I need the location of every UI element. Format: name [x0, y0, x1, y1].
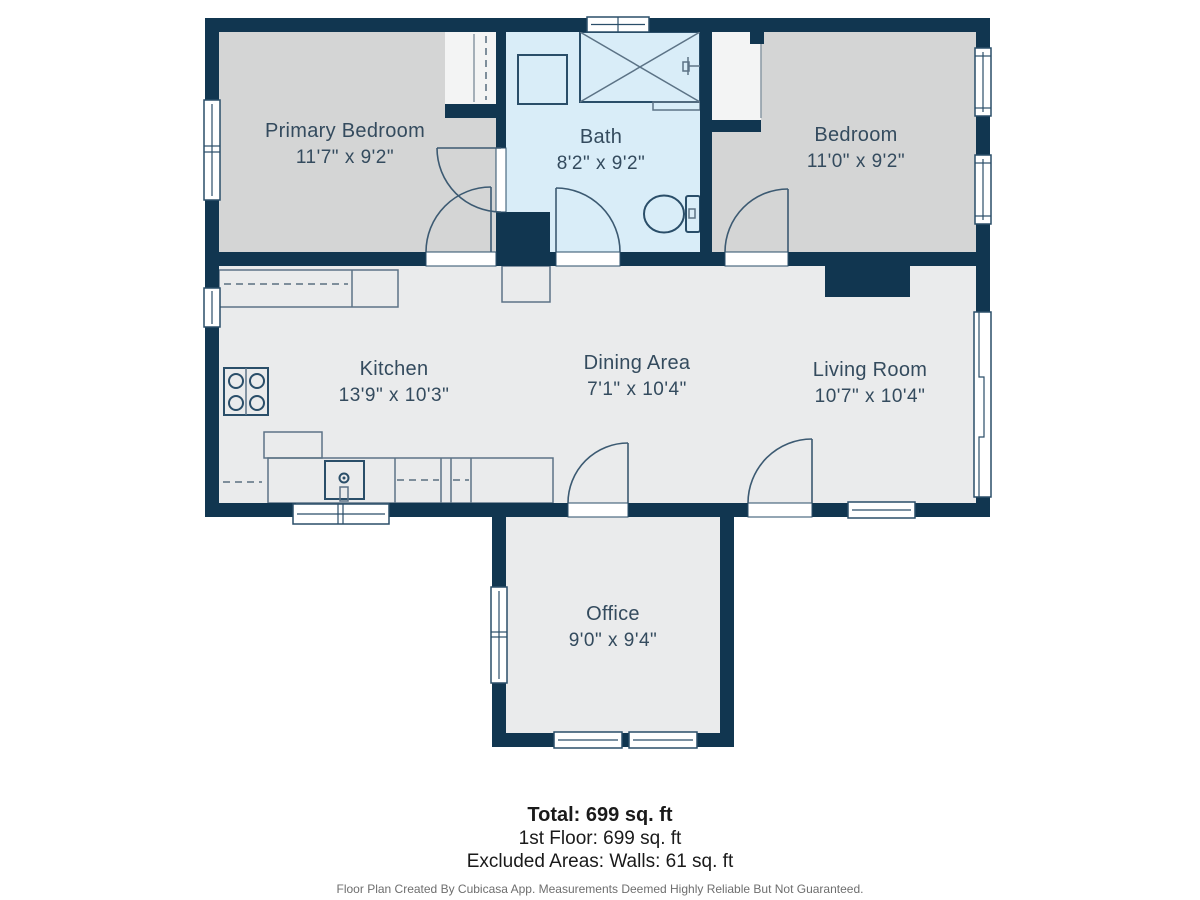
room-label: Dining Area	[584, 352, 691, 374]
first-floor-text: 1st Floor: 699 sq. ft	[0, 827, 1200, 850]
fireplace	[825, 252, 910, 297]
wall-segment	[389, 503, 568, 517]
closet-wall-stub	[445, 104, 496, 118]
room-label: Primary Bedroom	[265, 120, 425, 142]
room-label: Bedroom	[814, 124, 897, 146]
wall-segment	[976, 497, 990, 517]
window	[848, 502, 915, 518]
wall-segment	[915, 503, 976, 517]
wall-segment	[700, 32, 712, 252]
window	[629, 732, 697, 748]
room-label: Bath	[580, 126, 622, 148]
room-label: Kitchen	[360, 358, 429, 380]
disclaimer-text: Floor Plan Created By Cubicasa App. Meas…	[0, 882, 1200, 896]
room-dimensions: 10'7" x 10'4"	[815, 386, 926, 407]
bedroom-closet	[712, 32, 761, 120]
office-floor	[506, 517, 720, 733]
window	[975, 48, 991, 116]
window	[204, 100, 220, 200]
wall-segment	[205, 18, 219, 517]
room-dimensions: 13'9" x 10'3"	[339, 385, 450, 406]
total-area-text: Total: 699 sq. ft	[0, 804, 1200, 827]
area-summary: Total: 699 sq. ft 1st Floor: 699 sq. ft …	[0, 804, 1200, 896]
closet-floor	[712, 32, 761, 120]
sliding-window-wall	[974, 312, 991, 497]
room-dimensions: 11'7" x 9'2"	[296, 147, 394, 168]
office-wall-segment	[697, 733, 734, 747]
wall-segment	[620, 252, 725, 266]
room-label: Living Room	[813, 359, 927, 381]
window	[293, 504, 389, 524]
wall-segment	[628, 503, 748, 517]
window	[491, 587, 507, 683]
window	[975, 155, 991, 224]
room-dimensions: 9'0" x 9'4"	[569, 630, 658, 651]
room-label: Office	[586, 603, 640, 625]
closet-wall-stub	[700, 120, 761, 132]
window	[554, 732, 622, 748]
kitchen-faucet-dot	[343, 477, 346, 480]
wall-segment	[812, 503, 848, 517]
office-wall-segment	[492, 733, 554, 747]
excluded-area-text: Excluded Areas: Walls: 61 sq. ft	[0, 850, 1200, 873]
closet-wall-stub	[750, 32, 764, 44]
window	[204, 288, 220, 327]
room-dimensions: 11'0" x 9'2"	[807, 151, 905, 172]
closet-floor	[445, 32, 496, 104]
room-dimensions: 7'1" x 10'4"	[587, 379, 687, 400]
wall-segment	[496, 212, 550, 266]
window	[587, 17, 649, 32]
office-wall-segment	[492, 517, 506, 587]
floor-plan-canvas: Primary Bedroom 11'7" x 9'2" Bath 8'2" x…	[0, 0, 1200, 900]
wall-segment	[496, 32, 506, 148]
floor-plan-page: Primary Bedroom 11'7" x 9'2" Bath 8'2" x…	[0, 0, 1200, 900]
office-wall-segment	[720, 517, 734, 747]
wall-segment	[550, 252, 556, 266]
primary-closet	[445, 32, 496, 104]
wall-segment	[219, 252, 426, 266]
wall-segment	[219, 503, 296, 517]
room-dimensions: 8'2" x 9'2"	[557, 153, 646, 174]
office-wall-segment	[622, 733, 629, 747]
